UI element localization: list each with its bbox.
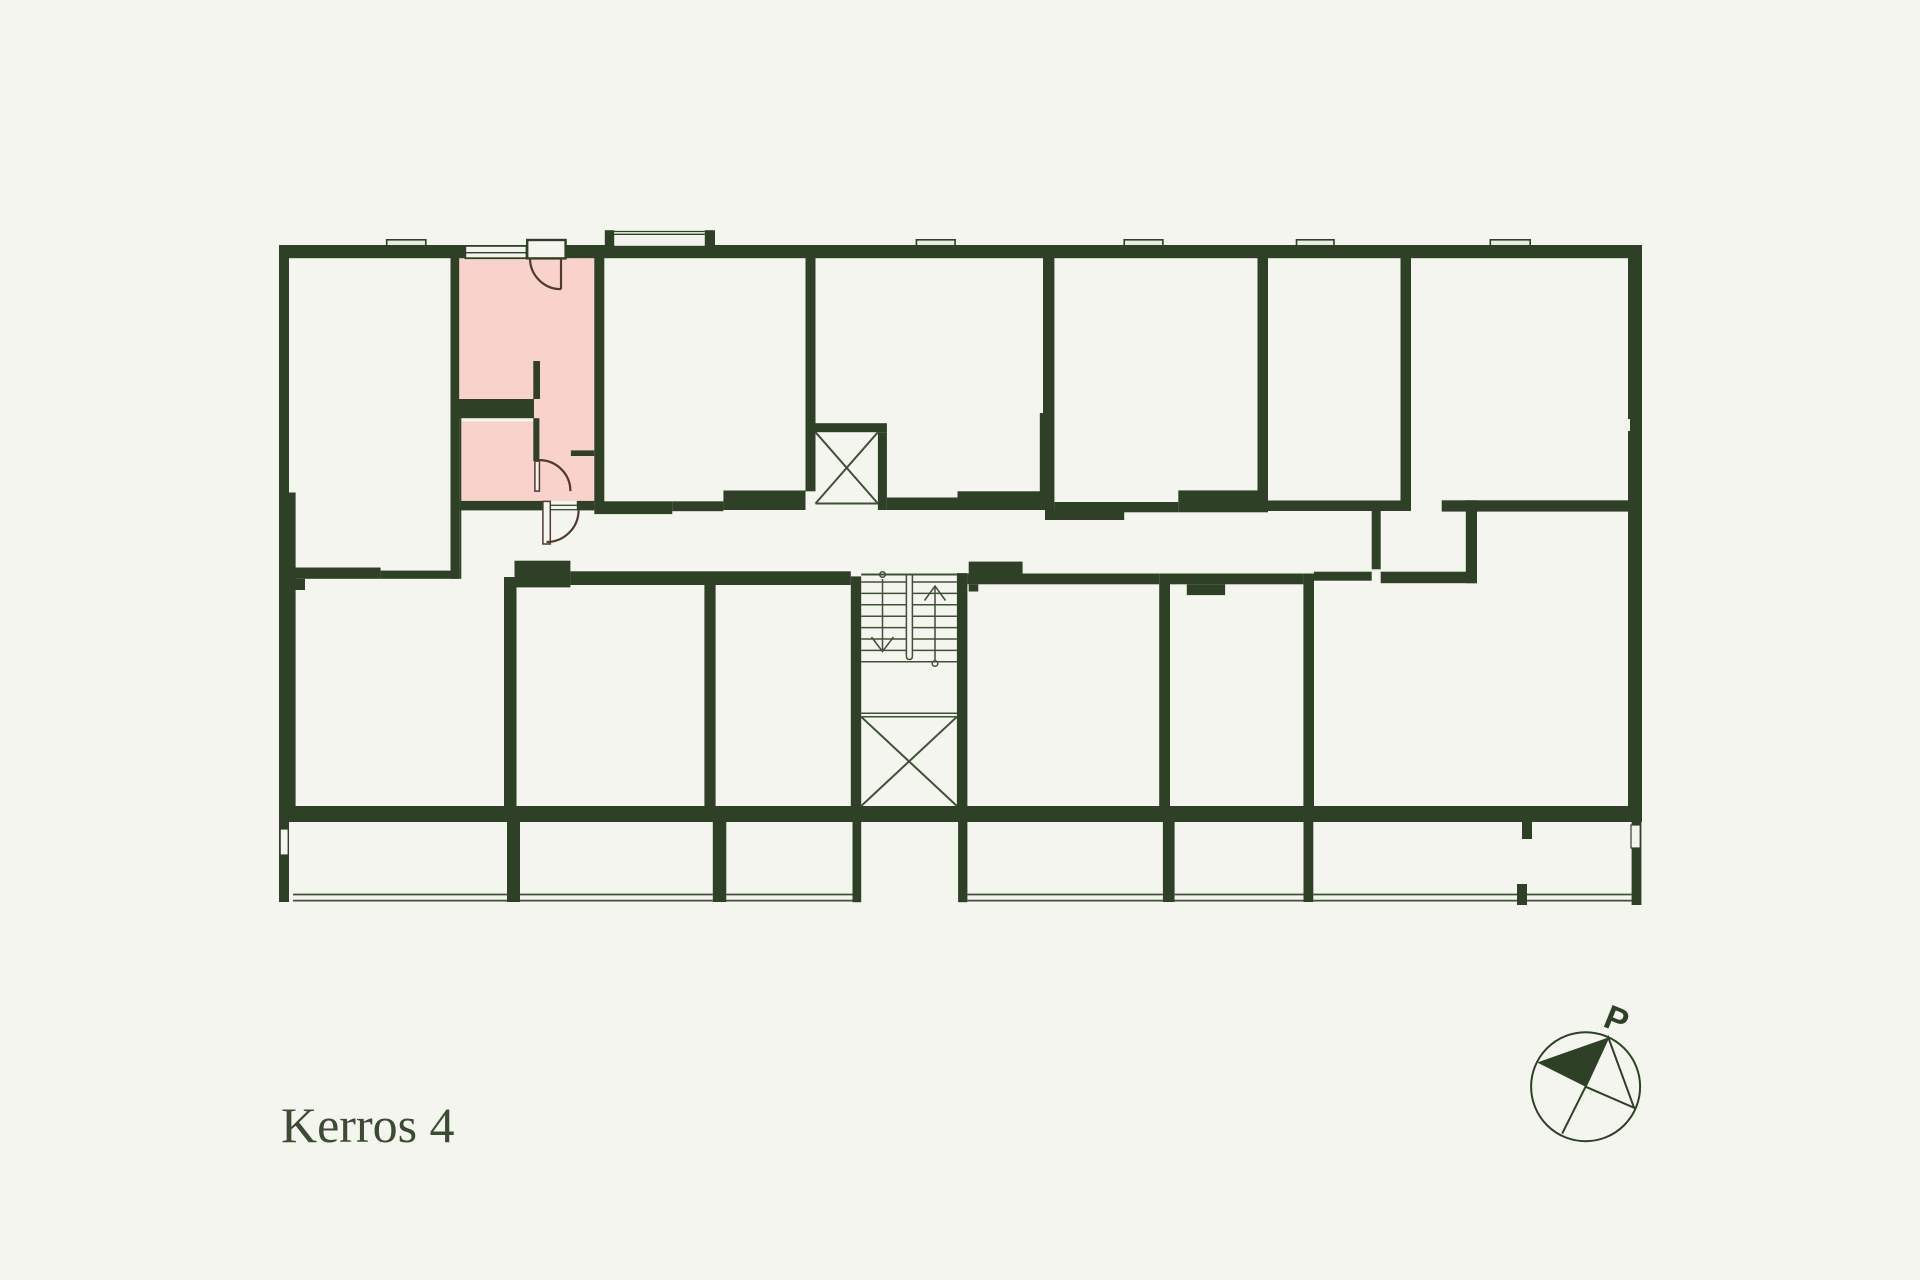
svg-text:Kerros 4: Kerros 4 xyxy=(281,1097,455,1153)
